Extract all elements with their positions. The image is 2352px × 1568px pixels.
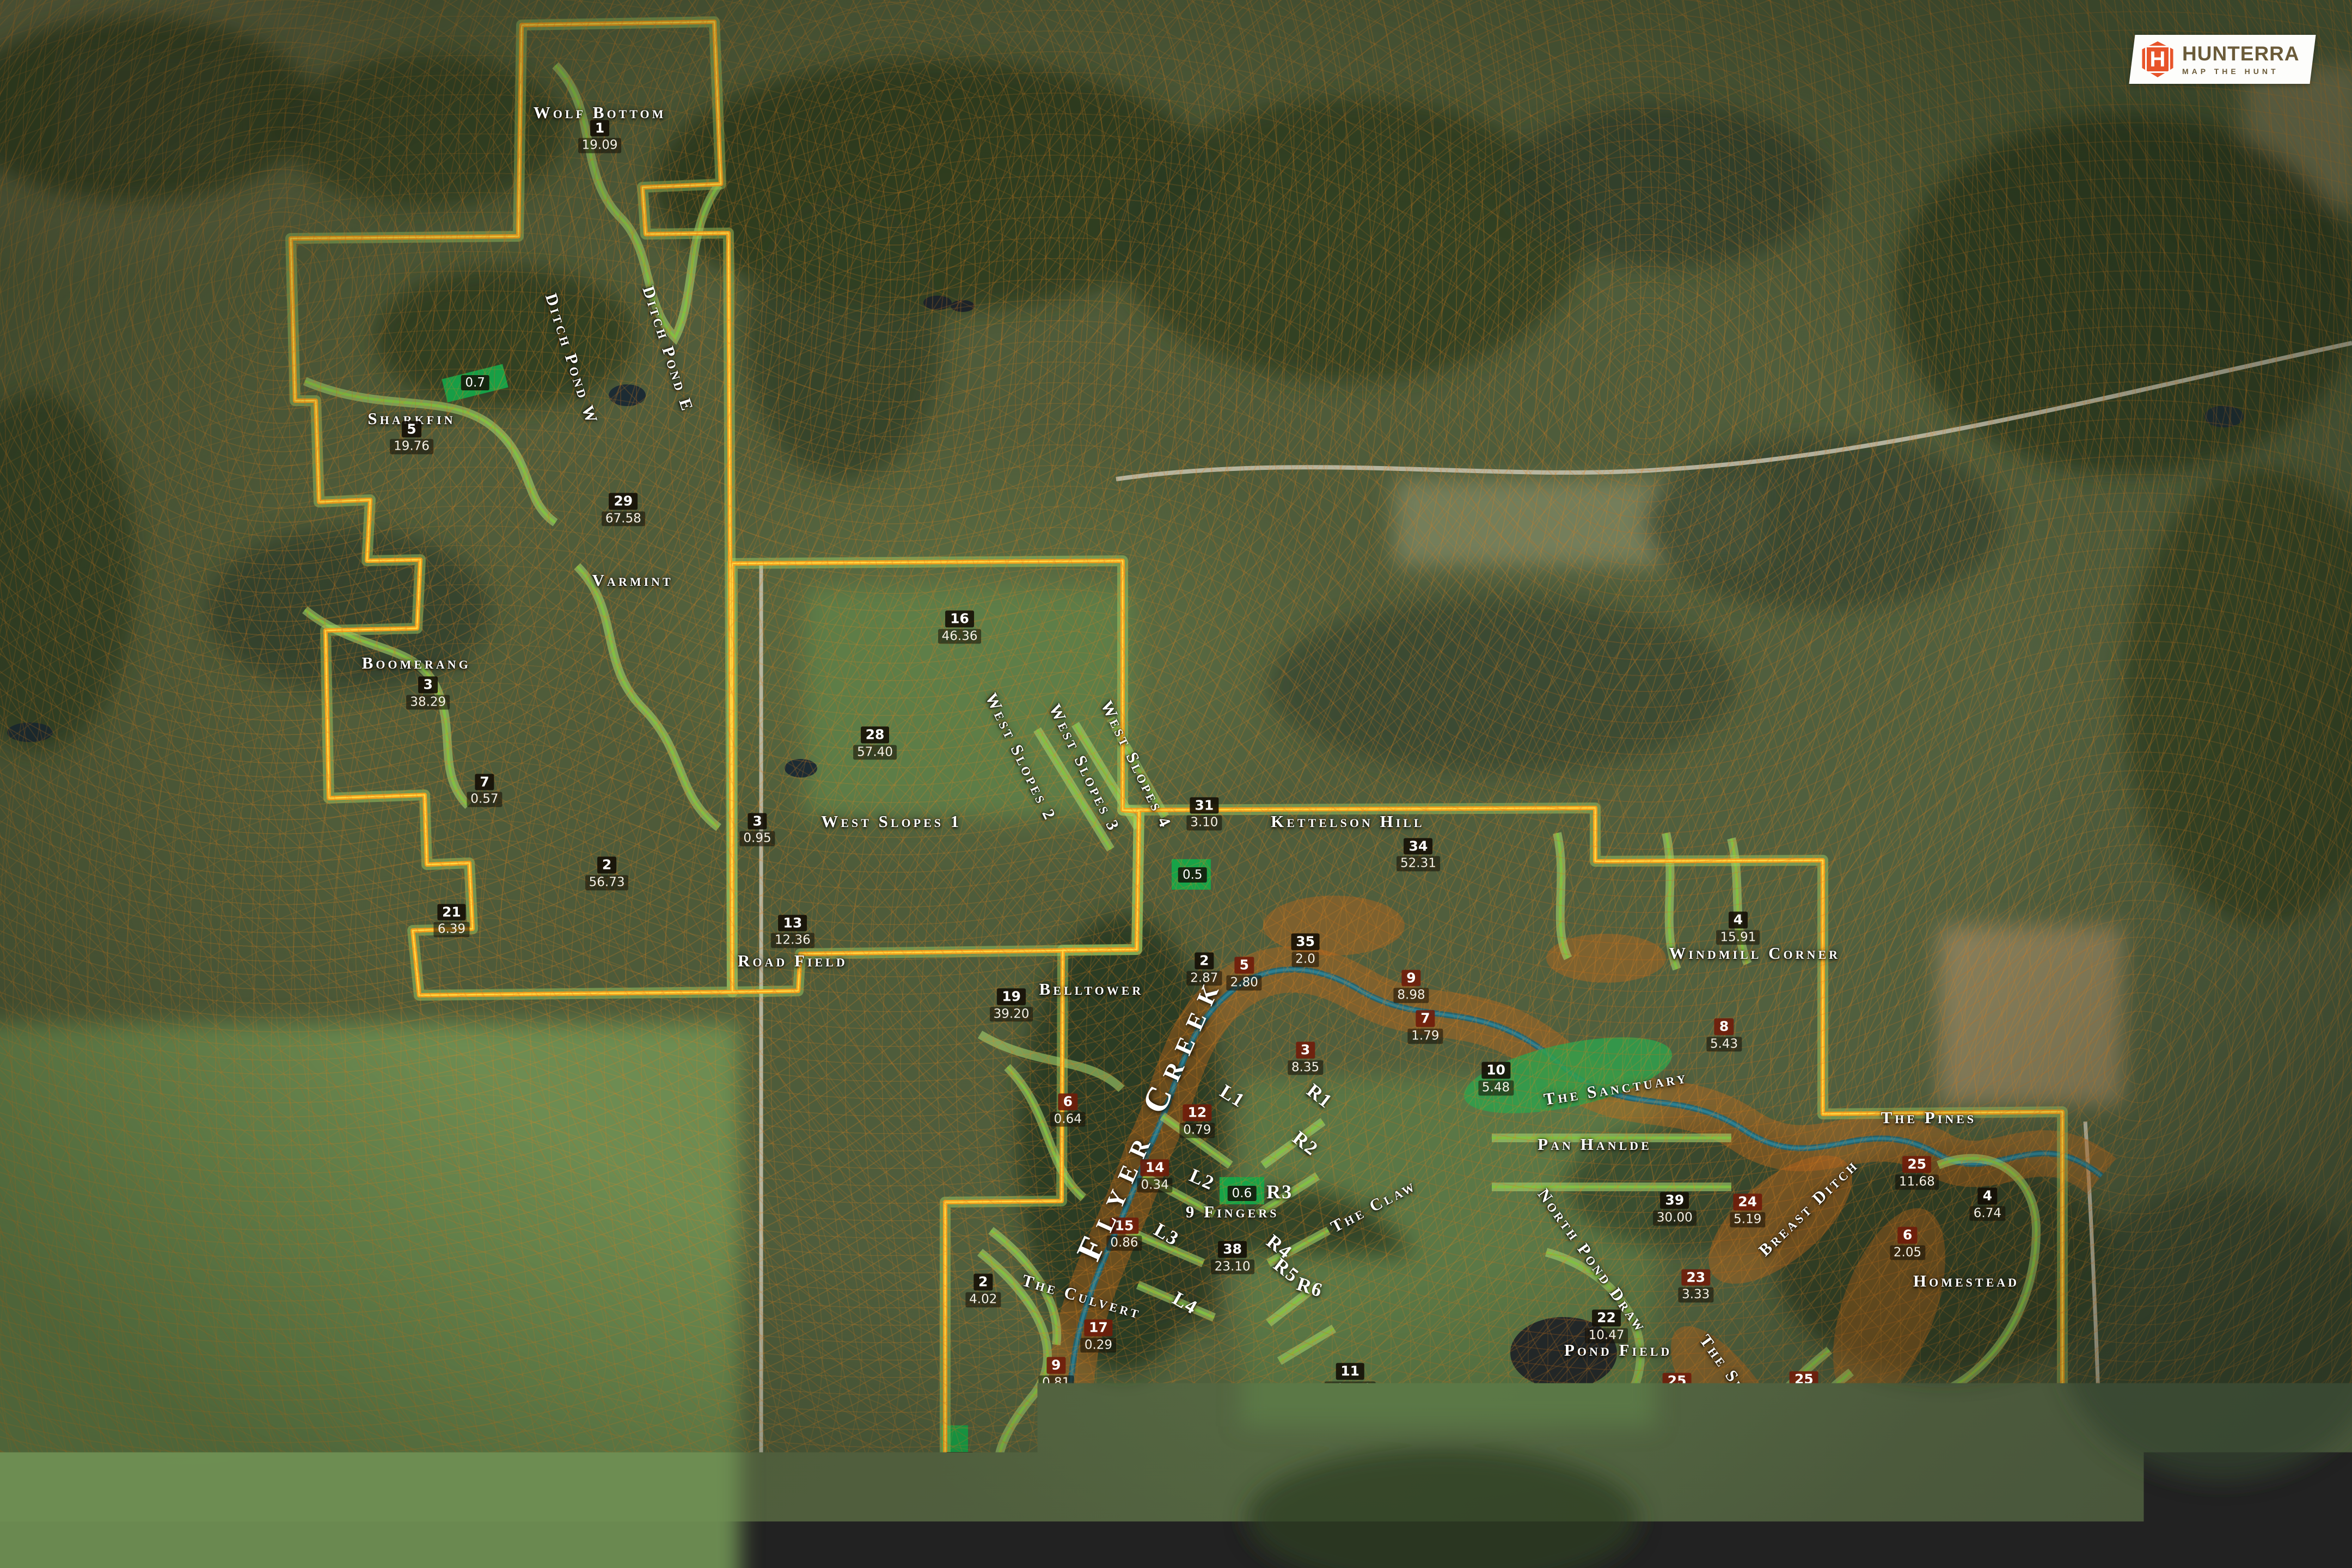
food-plot-acreage: 0.5 bbox=[945, 1452, 974, 1467]
map-disclaimer: accuracy of this data. This map should n… bbox=[2062, 1500, 2352, 1555]
food-plot-acreage: 0.6 bbox=[1228, 1186, 1257, 1201]
hunterra-logo: H HUNTERRA MAP THE HUNT bbox=[2129, 35, 2316, 84]
food-plot-acreage: 0.7 bbox=[461, 375, 489, 390]
disclaimer-line: direction. In no event will Hunterra Map… bbox=[2062, 1523, 2352, 1534]
hunting-property-map: Wolf BottomSharkfinDitch Pond WDitch Pon… bbox=[0, 0, 2352, 1568]
food-plot-acreage: 0.5 bbox=[1693, 1463, 1722, 1478]
disclaimer-line: use of this map. Reproduction of this ma… bbox=[2062, 1545, 2352, 1555]
food-plot-acreage: 0.5 bbox=[1178, 867, 1207, 883]
food-plot-labels-layer: 0.70.50.60.50.5 bbox=[0, 0, 2352, 1568]
hunterra-shield-icon: H bbox=[2141, 41, 2175, 77]
disclaimer-line: requiring exacting measurement of distan… bbox=[2062, 1511, 2352, 1522]
disclaimer-line: accuracy of this data. This map should n… bbox=[2062, 1500, 2352, 1511]
logo-brand: HUNTERRA bbox=[2182, 44, 2300, 64]
logo-tagline: MAP THE HUNT bbox=[2182, 68, 2300, 75]
disclaimer-line: liable for any losses, damages, or decis… bbox=[2062, 1534, 2352, 1545]
